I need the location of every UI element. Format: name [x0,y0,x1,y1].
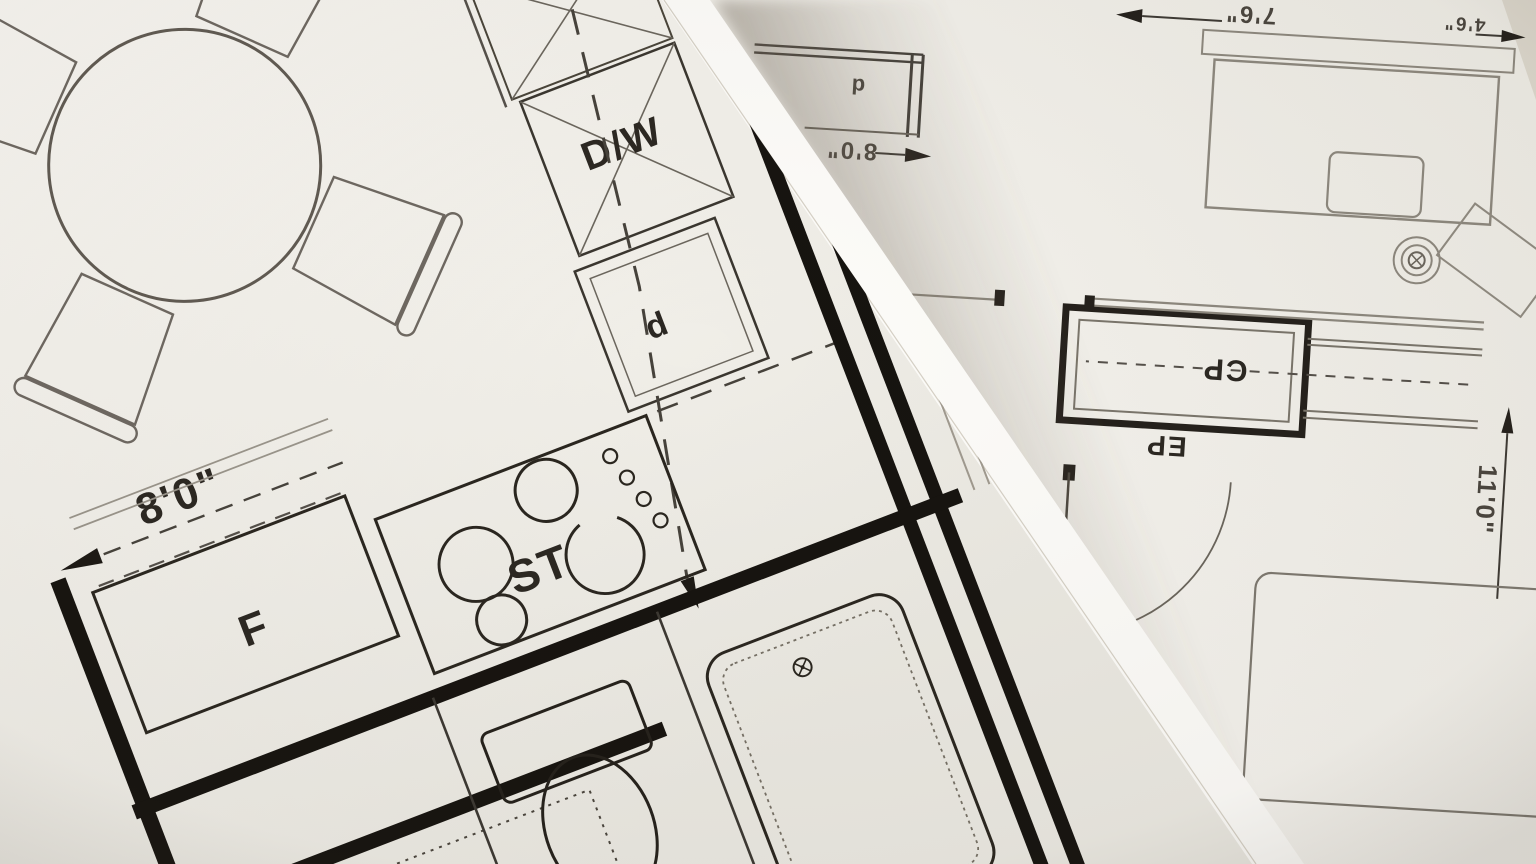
blueprint-photo: CP EP d 8'0" [0,0,1536,864]
photo-vignette [0,0,1536,864]
blueprint-scene: CP EP d 8'0" [0,0,1536,864]
